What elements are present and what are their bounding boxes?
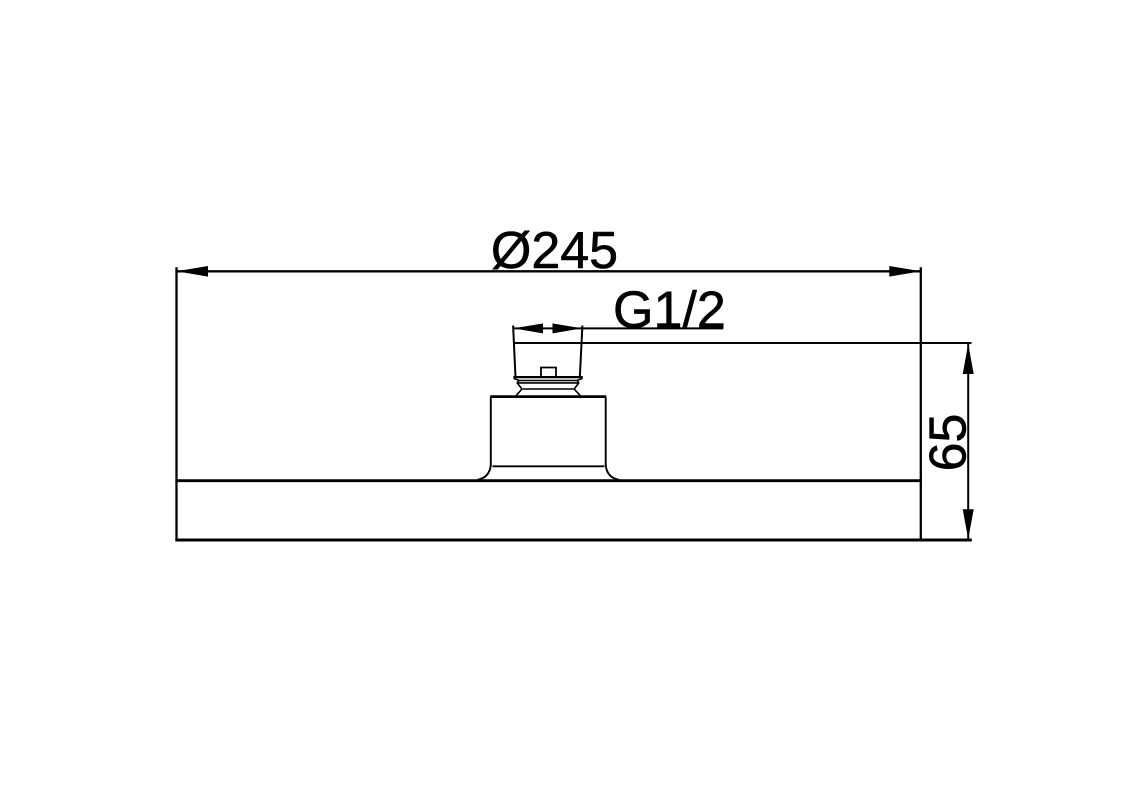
svg-text:G1/2: G1/2 xyxy=(613,282,726,340)
svg-text:65: 65 xyxy=(920,414,978,472)
